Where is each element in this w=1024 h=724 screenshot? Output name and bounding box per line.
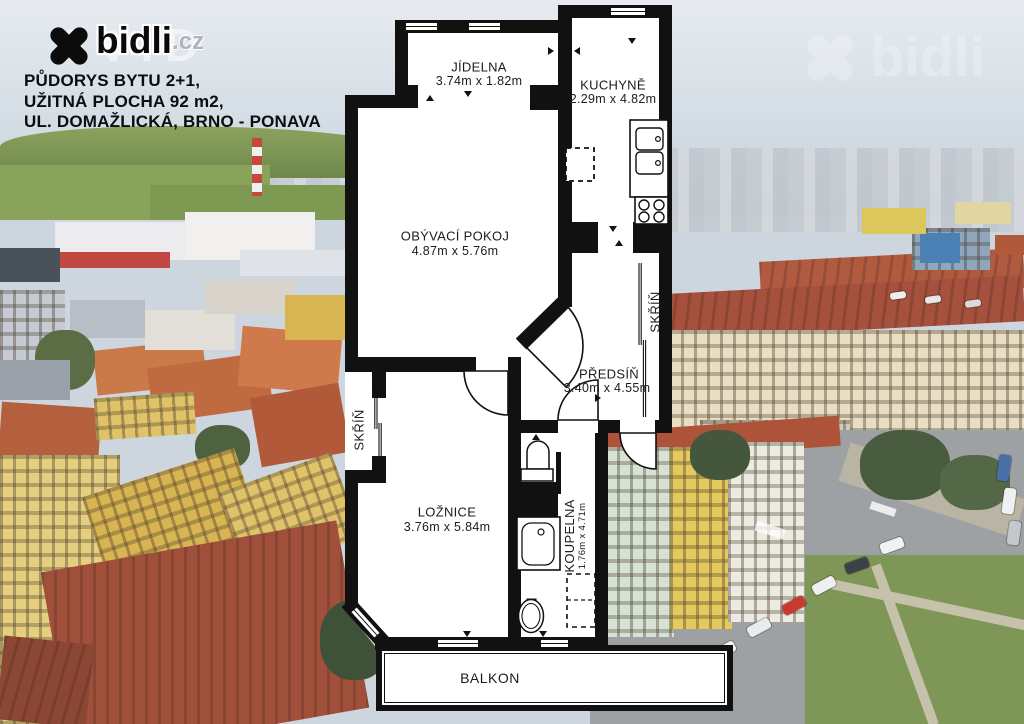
photo-car bbox=[890, 291, 907, 300]
title-line-2: UŽITNÁ PLOCHA 92 m2, bbox=[24, 92, 354, 113]
title-line-3: UL. DOMAŽLICKÁ, BRNO - PONAVA bbox=[24, 112, 354, 133]
photo-building bbox=[240, 250, 350, 276]
photo-building bbox=[94, 392, 197, 441]
photo-car bbox=[1006, 520, 1021, 545]
photo-chimney bbox=[252, 138, 262, 196]
wall-segment bbox=[372, 456, 386, 483]
photo-building bbox=[205, 280, 295, 314]
photo-building bbox=[82, 448, 268, 602]
room-dims-obyvaci-pokoj: 4.87m x 5.76m bbox=[412, 244, 499, 258]
photo-roof bbox=[995, 235, 1024, 255]
photo-car bbox=[746, 617, 772, 638]
photo-field bbox=[0, 165, 270, 220]
photo-building bbox=[285, 295, 345, 340]
room-dims-kuchyne: 2.29m x 4.82m bbox=[570, 92, 657, 106]
photo-building bbox=[920, 233, 960, 263]
photo-tree bbox=[940, 455, 1010, 510]
wall-segment bbox=[372, 372, 386, 398]
window bbox=[540, 639, 569, 648]
photo-building bbox=[70, 300, 145, 338]
room-label-obyvaci-pokoj: OBÝVACÍ POKOJ bbox=[401, 229, 509, 244]
wall-segment bbox=[598, 420, 620, 433]
photo-car bbox=[996, 454, 1012, 481]
room-label-skrin-predsin: SKŘÍŇ bbox=[648, 291, 663, 332]
balcony-outline: BALKON bbox=[376, 645, 733, 711]
wall-segment bbox=[558, 85, 572, 307]
room-label-balkon: BALKON bbox=[460, 670, 520, 686]
photo-car bbox=[925, 295, 942, 304]
photo-building bbox=[55, 222, 185, 260]
photo-roof bbox=[649, 275, 1024, 341]
bidli-logo: AVID bidli.cz bbox=[22, 8, 282, 68]
room-dims-predsin: 3.40m x 4.55m bbox=[564, 381, 651, 395]
bidli-watermark: bidli bbox=[794, 16, 1024, 100]
photo-road bbox=[838, 443, 1024, 538]
photo-path bbox=[871, 563, 939, 724]
photo-far-city bbox=[620, 148, 1024, 232]
wall-segment bbox=[655, 420, 672, 433]
photo-building bbox=[912, 228, 990, 270]
photo-tree bbox=[860, 430, 950, 500]
photo-grass bbox=[805, 555, 1024, 724]
photo-tree bbox=[195, 425, 250, 470]
wall-segment bbox=[558, 18, 572, 85]
photo-tree bbox=[35, 330, 95, 390]
photo-roof bbox=[147, 352, 273, 423]
photo-road-marking bbox=[754, 521, 786, 540]
listing-floorplan-image: BALKON bbox=[0, 0, 1024, 724]
photo-field bbox=[150, 185, 370, 220]
photo-car bbox=[781, 595, 807, 616]
photo-roof bbox=[250, 383, 351, 468]
wall-segment bbox=[659, 5, 672, 433]
photo-car bbox=[1001, 487, 1017, 514]
wall-segment bbox=[345, 357, 476, 372]
logo-word: bidli bbox=[96, 20, 172, 61]
wall-segment bbox=[513, 482, 558, 518]
wall-segment bbox=[556, 452, 561, 494]
photo-building bbox=[655, 330, 1024, 430]
room-dims-loznice: 3.76m x 5.84m bbox=[404, 520, 491, 534]
room-dims-koupelna: 1.76m x 4.71m bbox=[577, 499, 588, 572]
bidli-logo-text: bidli.cz bbox=[96, 20, 204, 62]
room-label-koupelna-name: KOUPELNA bbox=[562, 499, 577, 572]
photo-building bbox=[0, 248, 60, 282]
room-label-loznice: LOŽNICE bbox=[418, 505, 476, 520]
photo-car bbox=[811, 575, 837, 596]
room-label-kuchyne: KUCHYNĚ bbox=[580, 78, 646, 93]
photo-roof bbox=[93, 339, 207, 395]
photo-building bbox=[185, 212, 315, 260]
photo-building bbox=[700, 420, 850, 480]
photo-building bbox=[955, 202, 1011, 224]
photo-road-marking bbox=[869, 501, 896, 517]
logo-tld: .cz bbox=[172, 28, 204, 55]
photo-building bbox=[0, 360, 70, 400]
wall-segment bbox=[345, 95, 358, 372]
window bbox=[437, 639, 479, 648]
window bbox=[405, 22, 438, 31]
photo-building bbox=[604, 447, 674, 637]
photo-building bbox=[862, 208, 926, 234]
photo-roof bbox=[0, 402, 102, 464]
photo-building bbox=[218, 452, 362, 578]
photo-building bbox=[0, 455, 120, 724]
room-fill-loznice bbox=[345, 357, 521, 650]
photo-building bbox=[145, 310, 235, 350]
photo-tree bbox=[690, 430, 750, 480]
photo-building bbox=[670, 447, 732, 629]
photo-building bbox=[60, 252, 170, 268]
listing-title: PŮDORYS BYTU 2+1, UŽITNÁ PLOCHA 92 m2, U… bbox=[24, 71, 354, 133]
window bbox=[610, 7, 646, 16]
room-label-skrin-loznice: SKŘÍŇ bbox=[352, 409, 367, 450]
photo-car bbox=[879, 536, 905, 555]
wall-segment bbox=[345, 470, 358, 607]
wall-segment bbox=[558, 222, 598, 253]
room-label-jidelna: JÍDELNA bbox=[451, 60, 507, 75]
wall-segment bbox=[595, 433, 608, 650]
photo-roof bbox=[0, 636, 94, 724]
photo-roof bbox=[41, 520, 369, 724]
photo-car bbox=[965, 299, 982, 308]
room-label-koupelna: KOUPELNA 1.76m x 4.71m bbox=[562, 499, 588, 572]
photo-roof bbox=[759, 248, 1024, 302]
photo-path bbox=[831, 579, 1024, 630]
bidli-watermark-text: bidli bbox=[870, 24, 985, 89]
wall-segment bbox=[633, 222, 672, 253]
wall-segment bbox=[508, 420, 558, 433]
room-dims-jidelna: 3.74m x 1.82m bbox=[436, 74, 523, 88]
window bbox=[468, 22, 501, 31]
title-line-1: PŮDORYS BYTU 2+1, bbox=[24, 71, 354, 92]
photo-building bbox=[728, 442, 804, 622]
photo-car bbox=[844, 556, 870, 575]
balcony-inner-line bbox=[384, 653, 725, 703]
photo-roof bbox=[238, 326, 343, 394]
room-label-predsin: PŘEDSÍŇ bbox=[579, 367, 639, 382]
photo-building bbox=[0, 290, 65, 400]
